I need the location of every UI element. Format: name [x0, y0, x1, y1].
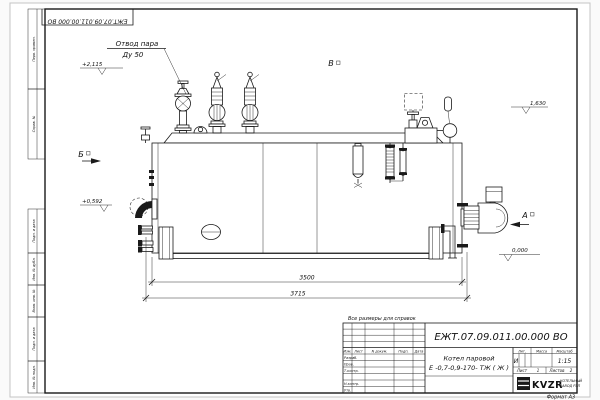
elev-2115: +2,115	[82, 62, 103, 68]
dim-3500-text: 3500	[299, 275, 314, 282]
scale-header: Масштаб	[556, 349, 572, 353]
reference-note: Все размеры для справок	[348, 316, 416, 322]
elev-0592: +0,592	[82, 199, 103, 205]
elev-0000: 0,000	[512, 248, 528, 254]
row-nkontr: Н.контр.	[344, 382, 359, 386]
margin-label: Справ. №	[32, 115, 36, 132]
boiler-drawing-svg: Перв. примен. Справ. № Подп. и дата Инв.…	[0, 0, 600, 400]
view-v-label: В	[328, 59, 334, 68]
margin-label: Подп. и дата	[32, 219, 36, 242]
sheets-no: 2	[570, 368, 573, 373]
mass-header: Масса	[536, 349, 547, 353]
col-podp: Подп.	[398, 350, 408, 354]
scale-value: 1:15	[558, 358, 572, 365]
col-izm: Изм.	[344, 350, 352, 354]
dim-3715-text: 3715	[290, 291, 305, 298]
callout-text-2: Ду 50	[122, 51, 144, 59]
view-a-label: А	[521, 211, 527, 220]
lit-header: Лит.	[517, 349, 526, 353]
blueprint-sheet: Перв. примен. Справ. № Подп. и дата Инв.…	[0, 0, 600, 400]
callout-text-1: Отвод пара	[116, 40, 159, 48]
kvzr-logo-sub2: ЗАВОД РЭП	[560, 384, 581, 388]
sheets-label: Листов	[549, 368, 566, 373]
row-prov: Пров.	[344, 363, 354, 367]
product-name-2: Е -0,7-0,9-170- ТЖ ( Ж )	[429, 364, 509, 372]
elev-1630: 1,630	[530, 101, 546, 107]
format-label: Формат А3	[547, 395, 575, 400]
col-data: Дата	[414, 350, 424, 354]
doc-number-stamp-text: ЕЖТ.07.09.011.00.000 ВО	[47, 18, 127, 25]
view-b-label: Б	[78, 150, 84, 159]
margin-label: Подп. и дата	[32, 327, 36, 350]
margin-label: Взам. инв. №	[32, 289, 36, 312]
lit-value: И	[514, 358, 519, 365]
product-name-1: Котел паровой	[444, 355, 495, 363]
sheet-no: 1	[537, 368, 540, 373]
row-razrab: Разраб.	[344, 356, 357, 360]
row-utv: Утв.	[344, 389, 351, 393]
row-tkontr: Т.контр.	[344, 369, 359, 373]
kvzr-logo-text: KVZR	[532, 380, 563, 391]
boiler-drum	[152, 143, 462, 253]
sheet-label: Лист	[516, 368, 528, 373]
doc-number: ЕЖТ.07.09.011.00.000 ВО	[434, 332, 567, 343]
margin-label: Инв. № подл.	[32, 365, 36, 388]
col-list: Лист	[353, 350, 364, 354]
boiler-top-platform	[164, 133, 443, 143]
col-ndocum: N докум.	[372, 350, 388, 354]
kvzr-logo-sub1: КОТЕЛЬНЫЙ	[560, 378, 582, 383]
margin-label: Перв. примен.	[32, 36, 36, 61]
margin-label: Инв. № дубл.	[32, 257, 36, 280]
